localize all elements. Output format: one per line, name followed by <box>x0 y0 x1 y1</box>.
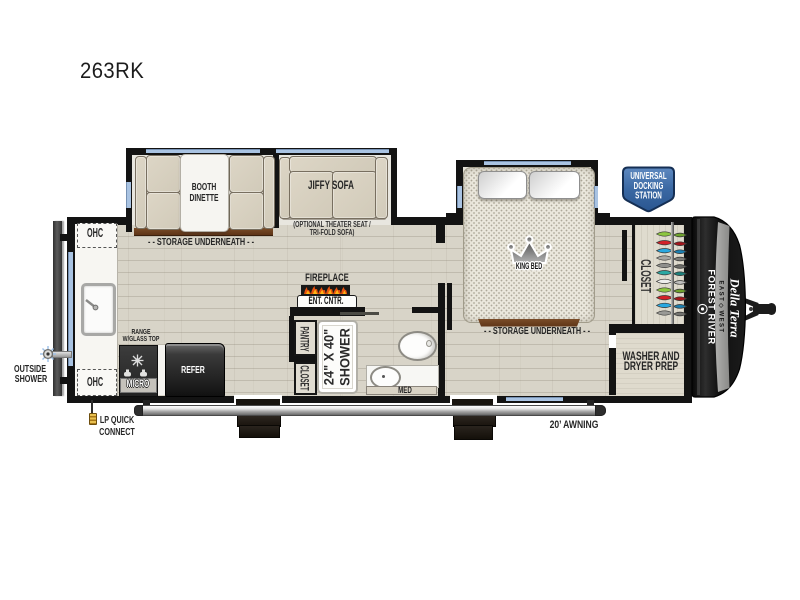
svg-text:STATION: STATION <box>635 189 662 201</box>
